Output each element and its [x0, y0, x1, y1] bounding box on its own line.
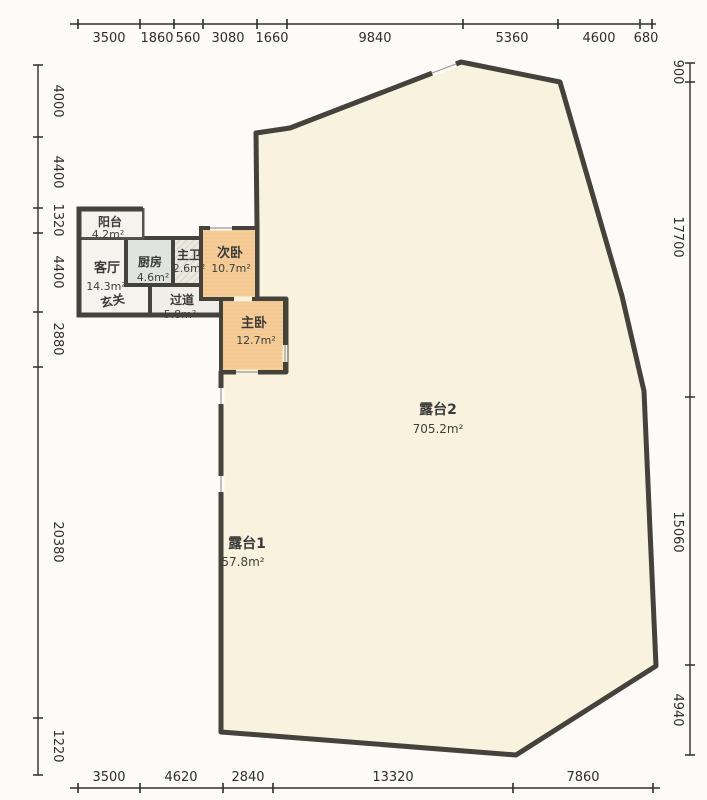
- living-area: 14.3m²: [86, 280, 126, 293]
- dim-right-label: 15060: [670, 511, 685, 552]
- dim-top-label: 1660: [255, 31, 288, 46]
- dim-top-label: 680: [634, 31, 659, 46]
- balcony-name: 阳台: [98, 214, 122, 229]
- dim-right-label: 4940: [670, 693, 685, 726]
- dim-bottom-label: 2840: [231, 770, 264, 785]
- dim-left-label: 1220: [50, 729, 65, 762]
- dim-top-label: 1860: [140, 31, 173, 46]
- dim-left-label: 1320: [50, 203, 65, 236]
- dim-left-label: 20380: [50, 521, 65, 562]
- dimension-chain-bottom: 3500 4620 2840 13320 7860: [70, 770, 660, 793]
- master-bedroom-area: 12.7m²: [236, 334, 276, 347]
- terrace1-area: 57.8m²: [221, 555, 264, 569]
- dim-left-label: 4000: [50, 84, 65, 117]
- dimension-chain-top: 3500 1860 560 3080 1660 9840 5360 4600 6…: [70, 19, 658, 46]
- second-bedroom-name: 次卧: [217, 245, 243, 261]
- terrace2-area: 705.2m²: [413, 422, 464, 436]
- dim-bottom-label: 3500: [92, 770, 125, 785]
- floor-plan-canvas: 阳台 4.2m² 客厅 14.3m² 玄关 厨房 4.6m² 主卫 2.6m² …: [0, 0, 707, 800]
- dimension-chain-left: 4000 4400 1320 4400 2880 20380 1220: [33, 65, 65, 775]
- hallway-name: 过道: [170, 292, 194, 307]
- dim-top-label: 3500: [92, 31, 125, 46]
- dim-bottom-label: 13320: [372, 770, 413, 785]
- dim-top-label: 9840: [358, 31, 391, 46]
- dim-right-label: 900: [670, 60, 685, 85]
- master-bedroom-name: 主卧: [241, 315, 267, 331]
- floor-plan-svg: 阳台 4.2m² 客厅 14.3m² 玄关 厨房 4.6m² 主卫 2.6m² …: [0, 0, 707, 800]
- terrace2-name: 露台2: [419, 401, 457, 418]
- balcony-area: 4.2m²: [92, 228, 125, 241]
- kitchen-area: 4.6m²: [137, 271, 170, 284]
- master-bath-name: 主卫: [177, 247, 201, 262]
- second-bedroom-area: 10.7m²: [211, 262, 251, 275]
- dim-top-label: 5360: [495, 31, 528, 46]
- terrace1-name: 露台1: [228, 535, 266, 552]
- dim-left-label: 2880: [50, 322, 65, 355]
- dim-top-label: 4600: [582, 31, 615, 46]
- living-name: 客厅: [94, 260, 120, 276]
- dim-left-label: 4400: [50, 155, 65, 188]
- dim-bottom-label: 4620: [164, 770, 197, 785]
- kitchen-name: 厨房: [138, 254, 162, 269]
- dimension-chain-right: 900 17700 15060 4940: [670, 60, 695, 755]
- dim-left-label: 4400: [50, 255, 65, 288]
- hallway-area: 5.8m²: [164, 308, 197, 321]
- dim-bottom-label: 7860: [566, 770, 599, 785]
- dim-top-label: 3080: [211, 31, 244, 46]
- master-bath-area: 2.6m²: [173, 262, 206, 275]
- dim-top-label: 560: [176, 31, 201, 46]
- dim-right-label: 17700: [670, 216, 685, 257]
